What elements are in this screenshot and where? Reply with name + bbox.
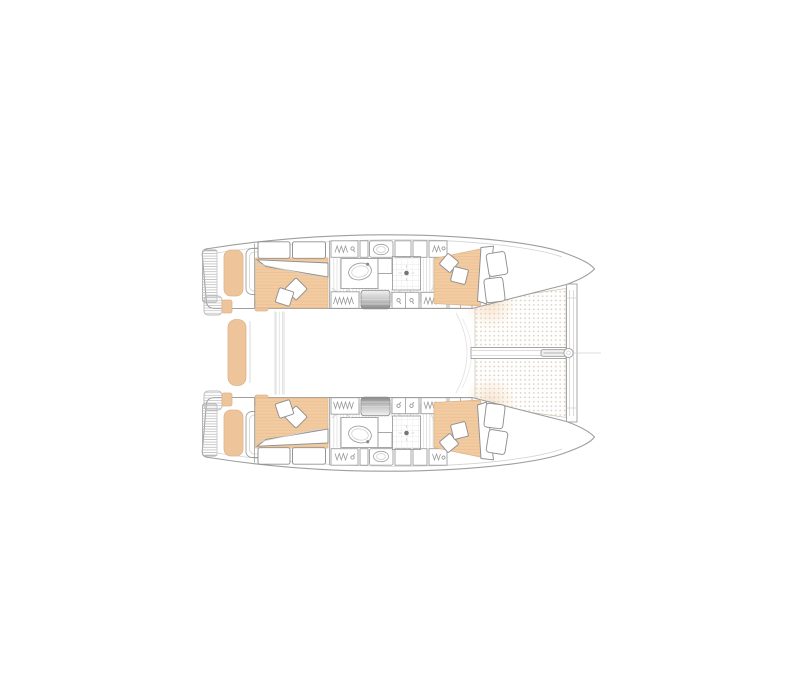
page-background	[0, 0, 800, 700]
cockpit-center-bench	[228, 320, 246, 386]
forestay-fitting	[564, 348, 573, 357]
catamaran-floorplan	[0, 0, 800, 700]
sliding-door-track	[275, 312, 284, 395]
floorplan-page	[0, 0, 800, 700]
